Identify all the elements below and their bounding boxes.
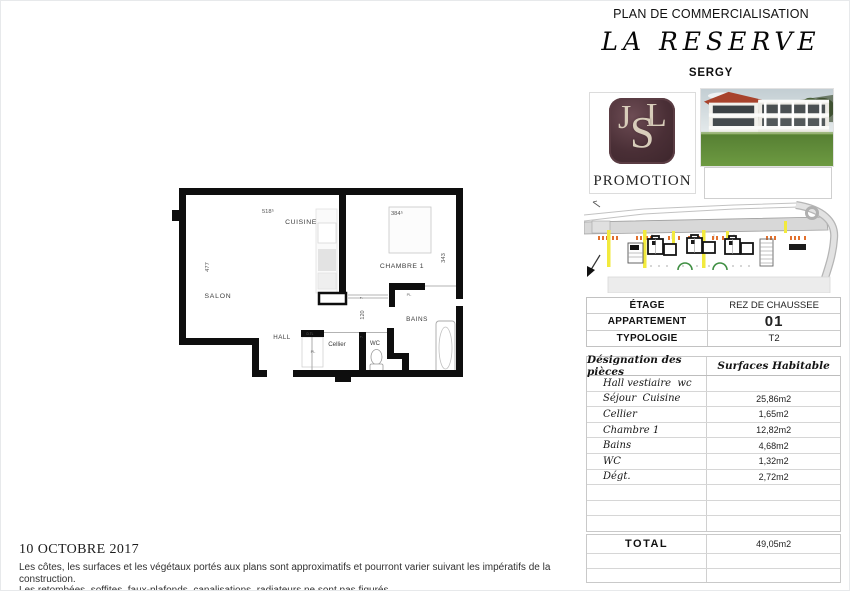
piece-cell: Bains xyxy=(587,438,707,453)
surface-cell xyxy=(707,501,840,516)
document-date: 10 OCTOBRE 2017 xyxy=(19,542,139,558)
table-row: ÉTAGE REZ DE CHAUSSEE xyxy=(587,298,840,313)
surface-cell xyxy=(707,376,840,391)
table-row xyxy=(587,516,840,531)
room-label-cellier: Cellier xyxy=(328,341,346,348)
photo-balcony xyxy=(709,126,829,129)
kitchen-appliance xyxy=(318,273,336,289)
table-row xyxy=(587,569,840,583)
surface-cell: 1,65m2 xyxy=(707,407,840,422)
surface-cell: 1,32m2 xyxy=(707,454,840,469)
kitchen-appliance xyxy=(318,223,336,243)
promoter-logo-box: J L S PROMOTION xyxy=(589,92,696,194)
surfaces-table: Désignation des pièces Surfaces Habitabl… xyxy=(586,356,841,532)
room-label-cuisine: CUISINE xyxy=(285,219,317,226)
dim-top-right: 384⁵ xyxy=(391,210,404,217)
site-buildings xyxy=(648,235,753,255)
table-row: APPARTEMENT 01 xyxy=(587,313,840,329)
kitchen-block-wall xyxy=(319,293,346,304)
table-row: Chambre 1 12,82m2 xyxy=(587,423,840,439)
total-value: 49,05m2 xyxy=(707,535,840,553)
disclaimer-line-2: Les retombées, soffites, faux-plafonds, … xyxy=(19,585,559,591)
annotation-placard-bains: PL xyxy=(407,293,412,297)
piece-cell: Cellier xyxy=(587,407,707,422)
table-row xyxy=(587,501,840,517)
commercialisation-sheet: PLAN DE COMMERCIALISATION LA RESERVE SER… xyxy=(0,0,850,591)
project-city: SERGY xyxy=(579,67,843,79)
dim-corridor: 120 xyxy=(360,310,366,319)
surface-cell: 4,68m2 xyxy=(707,438,840,453)
table-row: WC 1,32m2 xyxy=(587,454,840,470)
room-label-chambre: CHAMBRE 1 xyxy=(380,263,424,270)
piece-cell xyxy=(587,501,707,516)
room-label-salon: SALON xyxy=(204,293,231,300)
project-title: LA RESERVE xyxy=(579,27,843,56)
col-header-surfaces: Surfaces Habitable xyxy=(707,357,840,375)
photo-caption-box xyxy=(704,167,832,199)
table-row xyxy=(587,485,840,501)
total-label: TOTAL xyxy=(587,535,707,553)
table-row xyxy=(587,554,840,569)
site-top-left-mark xyxy=(593,201,600,207)
dim-right: 343 xyxy=(441,253,447,263)
monogram-letter-s: S xyxy=(630,111,654,155)
dim-tick-top: 7 xyxy=(359,296,364,299)
piece-cell: Chambre 1 xyxy=(587,423,707,438)
surfaces-table-header: Désignation des pièces Surfaces Habitabl… xyxy=(587,357,840,376)
apartment-info-table: ÉTAGE REZ DE CHAUSSEE APPARTEMENT 01 TYP… xyxy=(586,297,841,347)
table-row: TOTAL 49,05m2 xyxy=(587,535,840,554)
dim-left: 477 xyxy=(205,262,211,272)
toilet xyxy=(371,350,382,365)
photo-lawn xyxy=(701,134,833,166)
piece-cell xyxy=(587,516,707,531)
site-plan xyxy=(584,197,849,293)
piece-cell: Hall vestiaire wc xyxy=(587,376,707,391)
photo-balcony xyxy=(709,113,829,116)
surface-cell xyxy=(707,516,840,531)
room-label-wc: WC xyxy=(370,341,381,347)
table-row: TYPOLOGIE T2 xyxy=(587,330,840,346)
room-label-bains: BAINS xyxy=(406,316,428,323)
appartement-label: APPARTEMENT xyxy=(587,314,708,329)
dim-top-left: 518⁵ xyxy=(262,208,275,215)
document-kicker: PLAN DE COMMERCIALISATION xyxy=(579,7,843,21)
floor-plan: CUISINE SALON CHAMBRE 1 HALL Cellier WC … xyxy=(169,179,473,391)
north-arrow-icon xyxy=(587,255,600,277)
building-photo xyxy=(700,88,834,167)
kitchen-appliance xyxy=(318,249,336,271)
col-header-pieces: Désignation des pièces xyxy=(587,357,707,375)
piece-cell xyxy=(587,485,707,500)
table-row: Séjour Cuisine 25,86m2 xyxy=(587,392,840,408)
piece-cell: WC xyxy=(587,454,707,469)
table-row: Hall vestiaire wc xyxy=(587,376,840,392)
surface-cell xyxy=(707,485,840,500)
surface-cell: 2,72m2 xyxy=(707,470,840,485)
toilet-tank xyxy=(370,364,383,371)
etage-label: ÉTAGE xyxy=(587,298,708,313)
floor-plan-fixtures xyxy=(302,207,455,375)
room-label-hall: HALL xyxy=(273,334,291,341)
table-row: Cellier 1,65m2 xyxy=(587,407,840,423)
jsl-monogram-icon: J L S xyxy=(609,98,675,164)
disclaimer-line-1: Les côtes, les surfaces et les végétaux … xyxy=(19,562,559,585)
table-row: Bains 4,68m2 xyxy=(587,438,840,454)
typologie-value: T2 xyxy=(708,331,840,346)
piece-cell: Dégt. xyxy=(587,470,707,485)
etage-value: REZ DE CHAUSSEE xyxy=(708,298,840,313)
annotation-dtl: D.TL xyxy=(307,332,314,336)
surface-cell: 25,86m2 xyxy=(707,392,840,407)
appartement-value: 01 xyxy=(708,314,840,329)
table-row: Dégt. 2,72m2 xyxy=(587,470,840,486)
promoter-name: PROMOTION xyxy=(590,173,695,190)
typologie-label: TYPOLOGIE xyxy=(587,331,708,346)
total-table: TOTAL 49,05m2 xyxy=(586,534,841,583)
surface-cell: 12,82m2 xyxy=(707,423,840,438)
site-plot-ticks xyxy=(650,265,750,267)
site-field xyxy=(608,277,830,293)
piece-cell: Séjour Cuisine xyxy=(587,392,707,407)
disclaimer-text: Les côtes, les surfaces et les végétaux … xyxy=(19,562,559,591)
annotation-placard-hall: PL xyxy=(311,350,316,354)
